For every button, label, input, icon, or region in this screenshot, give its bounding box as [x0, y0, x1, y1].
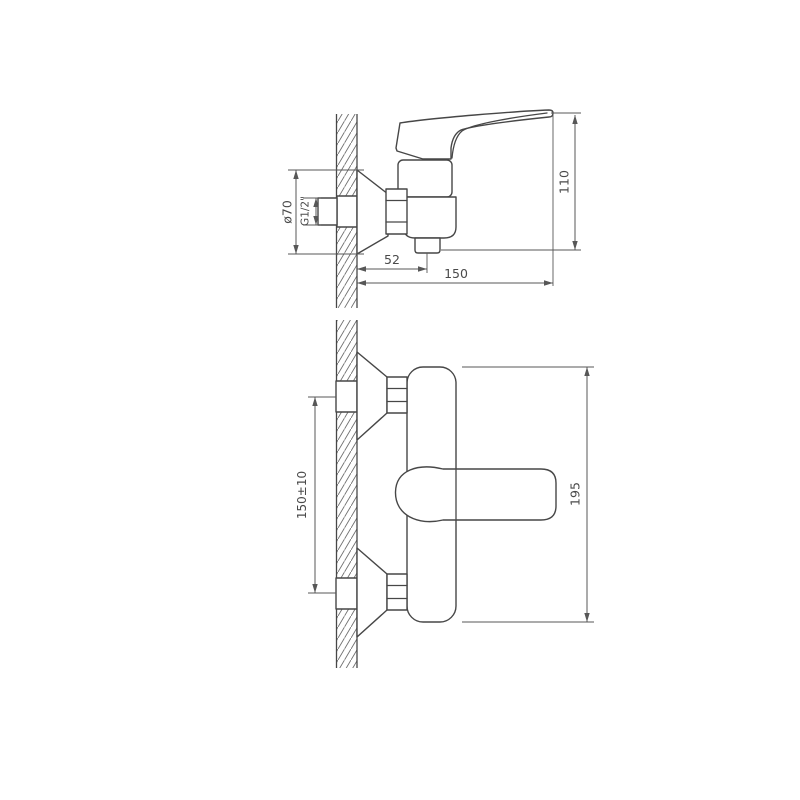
side-view: ø70 G1/2" 52 150 110	[279, 110, 581, 308]
spout-offset-label: 52	[384, 252, 400, 267]
mounting-nut-side	[386, 189, 407, 234]
connection-spacing-label: 150±10	[295, 471, 309, 519]
height-label: 110	[556, 170, 571, 194]
lever-handle-side	[396, 110, 553, 159]
top-escutcheon-cone	[357, 352, 387, 440]
supply-nipple	[318, 198, 337, 225]
lever-handle-front	[395, 467, 556, 522]
body-height-label: 195	[567, 482, 582, 506]
faucet-drawing-canvas: ø70 G1/2" 52 150 110	[0, 0, 800, 800]
wall-pipe-block	[337, 196, 357, 227]
dimension-height: 110	[441, 113, 581, 250]
spout-outlet	[415, 238, 440, 253]
front-view: 150±10 195	[295, 320, 594, 668]
dimension-spout-offset: 52	[357, 252, 427, 273]
technical-drawing: ø70 G1/2" 52 150 110	[0, 0, 800, 800]
bottom-escutcheon-cone	[357, 548, 387, 637]
diameter-label: ø70	[279, 200, 294, 224]
top-mounting-nut	[387, 377, 407, 413]
thread-label: G1/2"	[300, 196, 312, 226]
dimension-connection-spacing: 150±10	[295, 397, 336, 593]
bottom-wall-pipe-block	[336, 578, 357, 609]
bottom-mounting-nut	[387, 574, 407, 610]
top-wall-pipe-block	[336, 381, 357, 412]
wall-section-front	[337, 320, 358, 668]
faucet-lower-body-side	[404, 197, 456, 238]
escutcheon-cone-side	[357, 170, 388, 254]
depth-label: 150	[444, 266, 468, 281]
